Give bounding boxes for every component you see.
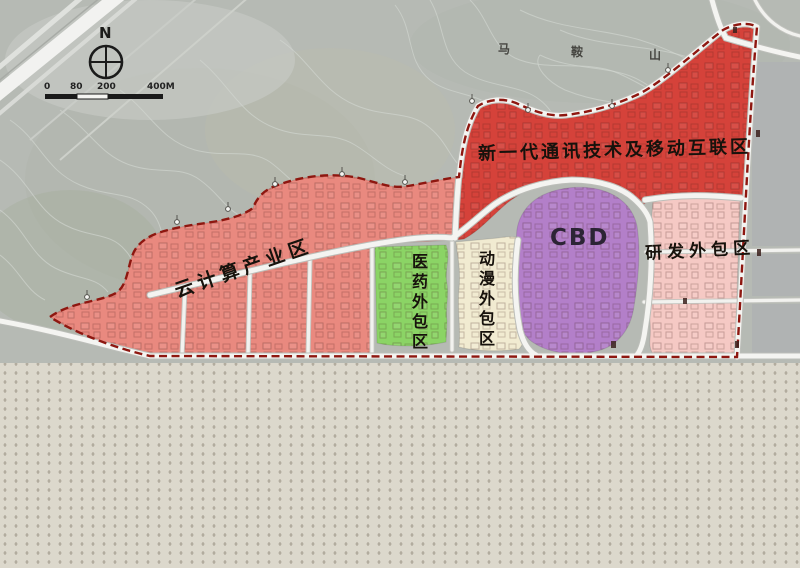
scale-tick-200: 200	[97, 82, 116, 92]
zone-label-anime: 动漫外包区	[473, 250, 497, 350]
scale-tick-0: 0	[44, 82, 50, 92]
scale-tick-80: 80	[70, 82, 83, 92]
mountain-label-char1: 马	[498, 40, 510, 57]
compass-icon	[90, 46, 122, 78]
zone-label-cbd: CBD	[550, 225, 610, 251]
mountain-label-char3: 山	[649, 46, 661, 63]
planning-map: 新一代通讯技术及移动互联区 云计算产业区 医药外包区 动漫外包区 CBD 研发外…	[0, 0, 800, 568]
mountain-label-char2: 鞍	[571, 43, 583, 60]
zone-label-pharma: 医药外包区	[406, 253, 430, 353]
scale-bar	[45, 94, 163, 99]
north-label: N	[99, 24, 112, 42]
scale-tick-400m: 400M	[147, 82, 175, 92]
flat-dotted-area	[0, 363, 800, 568]
east-blocks	[752, 62, 800, 356]
map-canvas	[0, 0, 800, 568]
